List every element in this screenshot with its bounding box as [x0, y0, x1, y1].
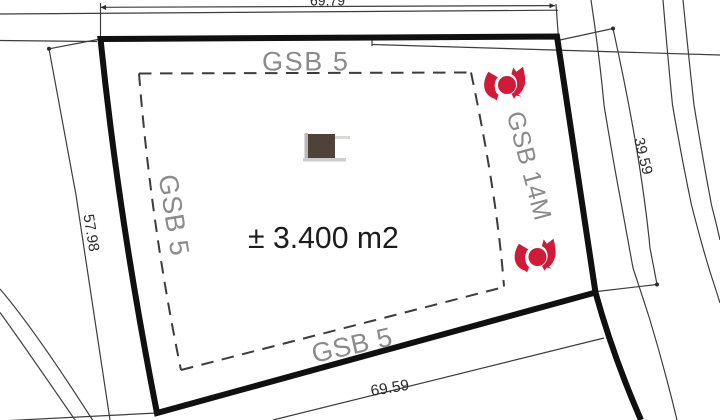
svg-text:69.79: 69.79 [310, 0, 345, 9]
svg-text:GSB 5: GSB 5 [262, 47, 350, 77]
svg-text:± 3.400 m2: ± 3.400 m2 [248, 222, 399, 255]
